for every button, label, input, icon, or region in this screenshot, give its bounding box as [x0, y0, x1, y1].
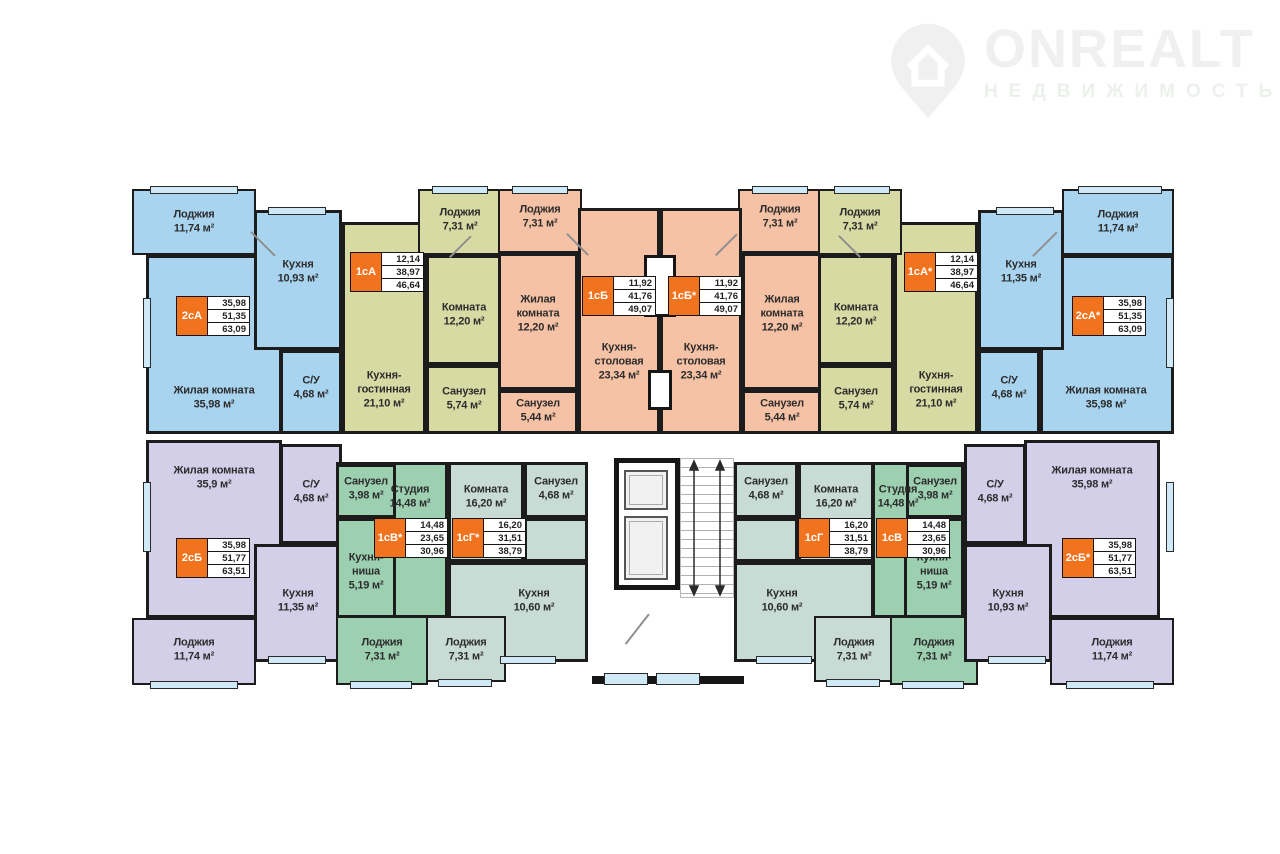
room-lodge [1062, 189, 1174, 255]
room-lodge [132, 618, 256, 685]
room-living [742, 253, 822, 390]
window [432, 186, 488, 194]
room-lodge [1050, 618, 1174, 685]
unit-type-label: 1сВ* [375, 519, 405, 557]
apartment-1sV-star: Санузел3,98 м² Студия14,48 м² Кухня-ниша… [0, 0, 1280, 854]
window [756, 656, 812, 664]
onrealt-pin-icon [884, 22, 972, 120]
room-hall [734, 518, 798, 562]
room-label: Лоджия11,74 м² [173, 208, 214, 236]
window [268, 656, 326, 664]
window [500, 656, 556, 664]
entrance-window [656, 673, 700, 685]
room-label: Санузел5,44 м² [516, 397, 560, 425]
room-kitchen [978, 210, 1064, 350]
room-bath [336, 464, 396, 518]
apartment-badge[interactable]: 1сВ 14,4823,6530,96 [876, 518, 950, 558]
window [143, 298, 151, 368]
window [752, 186, 808, 194]
room-label: Кухня10,93 м² [278, 258, 319, 286]
room-kitchen [448, 562, 588, 662]
door-swing [1032, 231, 1057, 256]
room-label: Лоджия7,31 м² [519, 203, 560, 231]
apartment-1sB-star: Лоджия7,31 м² Жилая комната12,20 м² Сану… [0, 0, 1280, 854]
window [512, 186, 568, 194]
window [350, 681, 412, 689]
room-label: Комната16,20 м² [464, 483, 508, 511]
unit-type-label: 2сА [177, 297, 207, 335]
apartment-badge[interactable]: 1сБ 11,9241,7649,07 [582, 276, 656, 316]
unit-type-label: 1сБ* [669, 277, 699, 315]
elevator-shaft [614, 458, 680, 590]
room-label: Санузел3,98 м² [344, 475, 388, 503]
room-label: Жилая комната35,98 м² [173, 384, 254, 412]
room-label: Кухня11,35 м² [1001, 258, 1041, 286]
window [1078, 186, 1162, 194]
apartment-1sB: Лоджия7,31 м² Жилая комната12,20 м² Сану… [0, 0, 1280, 854]
room-label: Комната12,20 м² [442, 301, 486, 329]
apartment-badge[interactable]: 1сА* 12,1438,9746,64 [904, 252, 978, 292]
room-su [964, 444, 1026, 544]
room-label: Лоджия11,74 м² [1097, 208, 1138, 236]
room-label: Кухня10,60 м² [514, 587, 555, 615]
window [150, 186, 238, 194]
unit-type-label: 1сА [351, 253, 381, 291]
unit-type-label: 1сГ* [453, 519, 483, 557]
room-lodge [426, 616, 506, 682]
room-label: Лоджия7,31 м² [913, 636, 954, 664]
room-label: Лоджия7,31 м² [833, 636, 874, 664]
room-living [146, 440, 282, 618]
room-label: Комната12,20 м² [834, 301, 878, 329]
window [1166, 298, 1174, 368]
window [143, 482, 151, 552]
apartment-2sB-star: Жилая комната35,98 м² С/У4,68 м² Кухня10… [0, 0, 1280, 854]
room-living [146, 255, 282, 434]
room-lodge [738, 189, 822, 253]
room-label: Жилая комната35,98 м² [1065, 384, 1146, 412]
window [150, 681, 238, 689]
door-swing [566, 233, 588, 255]
apartment-badge[interactable]: 1сВ* 14,4823,6530,96 [374, 518, 448, 558]
door-swing [250, 231, 275, 256]
entrance-door-swing [625, 614, 650, 645]
window [268, 207, 326, 215]
room-label: Жилая комната35,9 м² [173, 464, 254, 492]
room-room [426, 255, 502, 365]
apartment-badge[interactable]: 1сГ* 16,2031,5138,79 [452, 518, 526, 558]
room-su [280, 350, 342, 434]
room-label: Лоджия11,74 м² [1091, 636, 1132, 664]
room-bath [906, 464, 964, 518]
door-swing [715, 233, 737, 255]
room-label: Лоджия7,31 м² [759, 203, 800, 231]
room-label: С/У4,68 м² [294, 478, 329, 506]
room-label: Кухня-гостинная21,10 м² [342, 369, 426, 410]
onrealt-watermark: ONREALT НЕДВИЖИМОСТЬ [884, 22, 1280, 120]
unit-type-label: 1сГ [799, 519, 829, 557]
room-living [1024, 440, 1160, 618]
window [1166, 482, 1174, 552]
room-living [498, 253, 578, 390]
window [996, 207, 1054, 215]
apartment-badge[interactable]: 2сА 35,9851,3563,09 [176, 296, 250, 336]
room-label: Кухня-столовая23,34 м² [579, 341, 659, 382]
apartment-1sA-star: Лоджия7,31 м² Кухня-гостинная21,10 м² Ко… [0, 0, 1280, 854]
apartment-1sV: Санузел3,98 м² Студия14,48 м² Кухня-ниша… [0, 0, 1280, 854]
brand-subtitle: НЕДВИЖИМОСТЬ [984, 81, 1280, 103]
room-bath [818, 365, 894, 434]
unit-type-label: 2сБ [177, 539, 207, 577]
room-label: Лоджия7,31 м² [445, 636, 486, 664]
room-lodge [132, 189, 256, 255]
room-lodge [814, 616, 892, 682]
room-label: Лоджия11,74 м² [173, 636, 214, 664]
window [988, 656, 1046, 664]
apartment-badge[interactable]: 1сБ* 11,9241,7649,07 [668, 276, 742, 316]
unit-type-label: 1сА* [905, 253, 935, 291]
elevator-cabin [624, 516, 668, 580]
room-su [978, 350, 1040, 434]
room-living [1040, 255, 1174, 434]
room-label: Кухня10,60 м² [762, 587, 803, 615]
room-bath [524, 462, 588, 518]
room-label: С/У4,68 м² [294, 374, 329, 402]
apartment-badge[interactable]: 2сБ* 35,9851,7763,51 [1062, 538, 1136, 578]
brand-name: ONREALT [984, 22, 1280, 76]
room-label: Санузел4,68 м² [744, 475, 788, 503]
room-bath [734, 462, 798, 518]
room-bath [742, 390, 822, 434]
room-label: Кухня10,93 м² [988, 587, 1029, 615]
room-label: Санузел5,74 м² [834, 385, 878, 413]
stairs-direction-arrows [680, 458, 734, 598]
unit-type-label: 2сБ* [1063, 539, 1093, 577]
room-label: Лоджия7,31 м² [839, 206, 880, 234]
room-lodge [890, 616, 978, 685]
room-kitchen [734, 562, 874, 662]
room-label: Санузел4,68 м² [534, 475, 578, 503]
room-label: С/У4,68 м² [992, 374, 1027, 402]
room-label: Кухня-столовая23,34 м² [661, 341, 741, 382]
apartment-2sA: Лоджия11,74 м² Кухня10,93 м² С/У4,68 м² … [0, 0, 1280, 854]
window [438, 679, 492, 687]
floor-plan: ONREALT НЕДВИЖИМОСТЬ Лоджия11,74 м² Кухн… [0, 0, 1280, 854]
unit-type-label: 2сА* [1073, 297, 1103, 335]
room-label: Студия14,48 м² [390, 483, 431, 511]
room-room [818, 255, 894, 365]
door-swing [449, 235, 471, 257]
room-kitchen [964, 544, 1052, 662]
room-su [280, 444, 342, 544]
apartment-badge[interactable]: 2сА* 35,9851,3563,09 [1072, 296, 1146, 336]
room-label: Кухня-гостинная21,10 м² [894, 369, 978, 410]
room-label: Студия14,48 м² [878, 483, 919, 511]
room-lodge [818, 189, 902, 255]
entrance-window [604, 673, 648, 685]
room-label: Комната16,20 м² [814, 483, 858, 511]
room-label: Жилая комната12,20 м² [750, 293, 814, 334]
apartment-1sG-star: Комната16,20 м² Санузел4,68 м² Кухня10,6… [0, 0, 1280, 854]
room-bath [498, 390, 578, 434]
apartment-badge[interactable]: 1сГ 16,2031,5138,79 [798, 518, 872, 558]
room-bath [426, 365, 502, 434]
apartment-1sA: Лоджия7,31 м² Кухня-гостинная21,10 м² Ко… [0, 0, 1280, 854]
window [1066, 681, 1154, 689]
apartment-badge[interactable]: 2сБ 35,9851,7763,51 [176, 538, 250, 578]
window [834, 186, 890, 194]
room-lodge [336, 616, 428, 685]
door-swing [838, 235, 860, 257]
room-hall [524, 518, 588, 562]
room-kitchen [254, 544, 342, 662]
ventilation-shaft [648, 370, 672, 410]
room-label: Лоджия7,31 м² [439, 206, 480, 234]
apartment-2sA-star: Лоджия11,74 м² Кухня11,35 м² С/У4,68 м² … [0, 0, 1280, 854]
window [826, 679, 880, 687]
room-label: Санузел3,98 м² [913, 475, 957, 503]
unit-type-label: 1сВ [877, 519, 907, 557]
room-label: Жилая комната35,98 м² [1051, 464, 1132, 492]
unit-type-label: 1сБ [583, 277, 613, 315]
apartment-1sG: Санузел4,68 м² Комната16,20 м² Кухня10,6… [0, 0, 1280, 854]
room-label: Лоджия7,31 м² [361, 636, 402, 664]
elevator-cabin [624, 470, 668, 510]
room-label: С/У4,68 м² [978, 478, 1013, 506]
room-label: Санузел5,44 м² [760, 397, 804, 425]
room-label: Жилая комната12,20 м² [506, 293, 570, 334]
apartment-badge[interactable]: 1сА 12,1438,9746,64 [350, 252, 424, 292]
room-lodge [498, 189, 582, 253]
window [902, 681, 964, 689]
room-kitchen [254, 210, 342, 350]
room-label: Санузел5,74 м² [442, 385, 486, 413]
apartment-2sB: Жилая комната35,9 м² С/У4,68 м² Кухня11,… [0, 0, 1280, 854]
room-label: Кухня11,35 м² [278, 587, 318, 615]
